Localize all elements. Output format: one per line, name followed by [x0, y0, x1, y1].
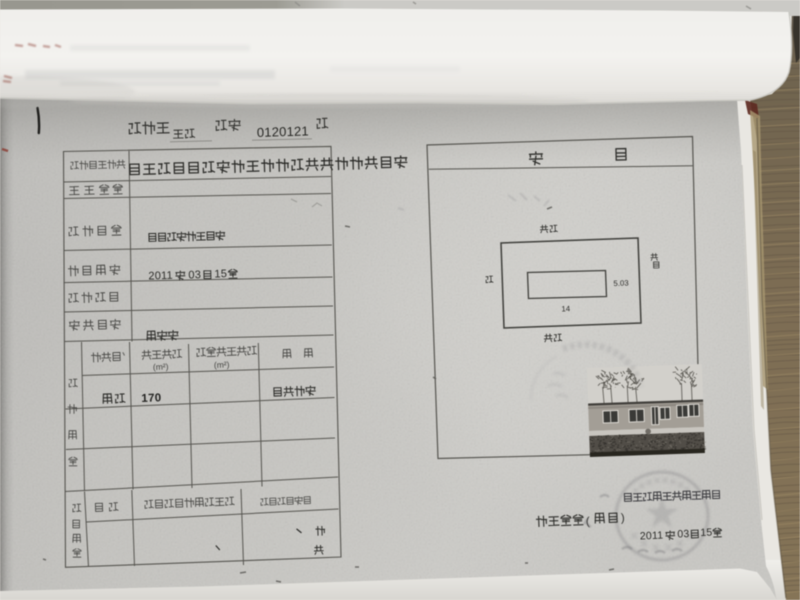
svg-text:2011: 2011 [640, 530, 664, 543]
svg-text:0120121: 0120121 [257, 123, 309, 140]
svg-text:5.03: 5.03 [613, 279, 628, 288]
svg-text:03: 03 [188, 269, 201, 281]
svg-text:): ) [621, 512, 625, 524]
svg-text:(m²): (m²) [153, 361, 169, 372]
svg-text:170: 170 [141, 392, 162, 405]
svg-text:03: 03 [677, 528, 690, 540]
svg-text:15: 15 [700, 527, 713, 539]
svg-text:15: 15 [214, 268, 227, 280]
svg-text:2011: 2011 [148, 270, 173, 283]
svg-text:(m²): (m²) [214, 359, 230, 370]
svg-text:14: 14 [561, 304, 571, 313]
